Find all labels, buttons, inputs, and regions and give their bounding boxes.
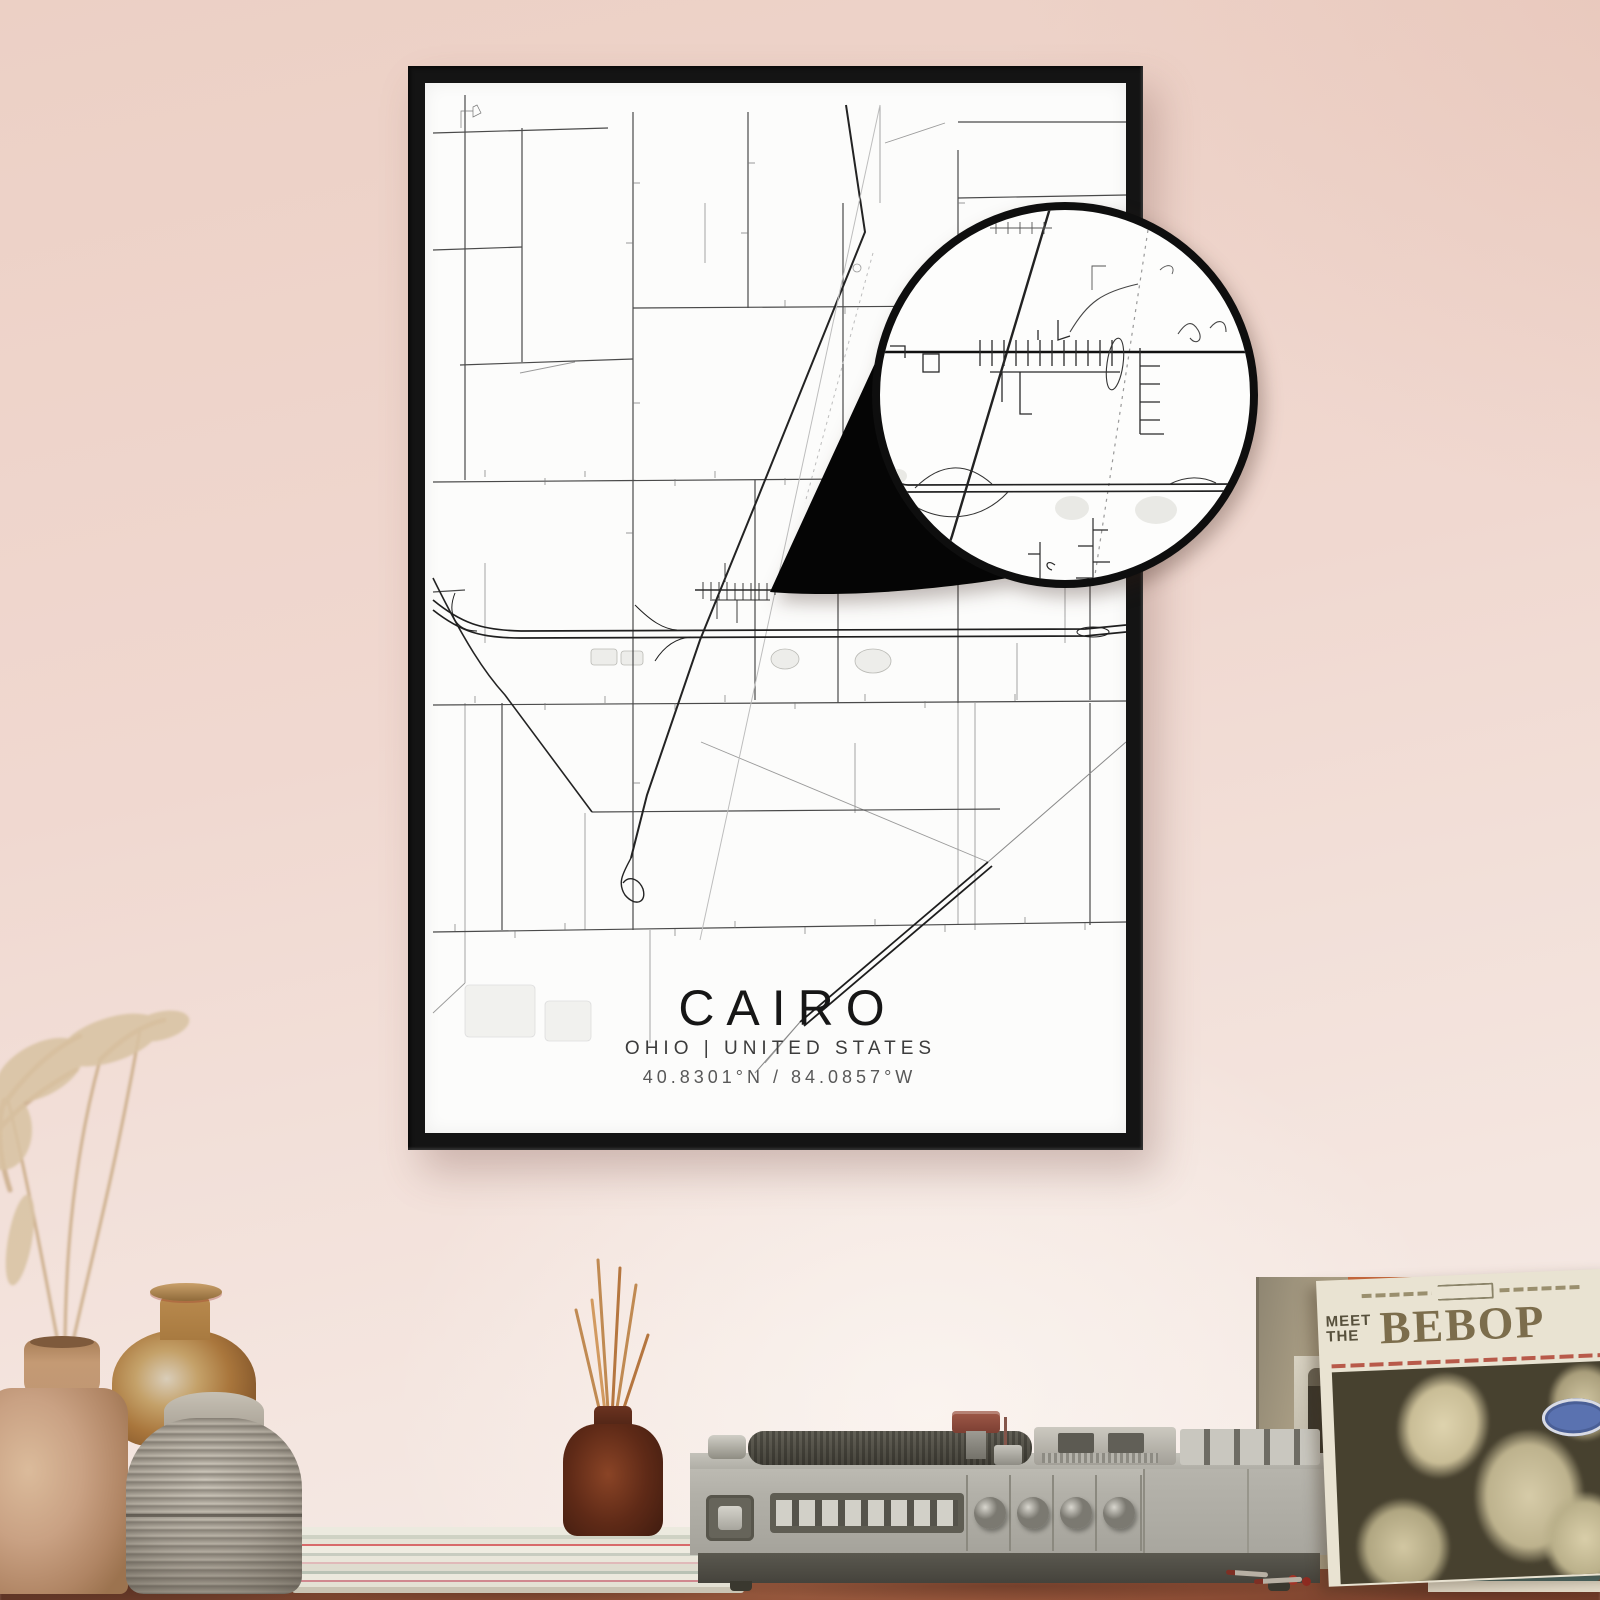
tan-jug-body [0,1388,128,1594]
amber-vase-neck [160,1296,210,1340]
player-lever-knob [708,1435,746,1459]
knob-divider [966,1475,968,1551]
poster-coordinates: 40.8301°N / 84.0857°W [425,1067,1130,1088]
volume-knob [974,1497,1006,1529]
red-accent [1302,1577,1311,1586]
tray-slot [1058,1433,1094,1453]
sleeve-title-bar: MEET THE BEBOP [1325,1296,1600,1362]
power-button [718,1506,742,1530]
knob-divider [1140,1475,1142,1551]
sleeve-photo [1332,1360,1600,1584]
paper-stack-edge [1428,1581,1600,1592]
knob-divider [1052,1475,1054,1551]
panel-seam [1247,1469,1249,1555]
knob-divider [1009,1475,1011,1551]
player-front-right-panel [1143,1469,1327,1555]
magnifier-circle [876,206,1254,584]
diffuser-bottle [563,1424,663,1536]
magnifier-detail [740,170,1300,640]
player-base [698,1553,1320,1583]
sleeve-fine-print-left [1362,1291,1432,1298]
sleeve-fine-print-right [1499,1285,1579,1292]
tonearm-stem [966,1431,986,1459]
turntable-platter [748,1431,1032,1465]
sleeve-meet-the: MEET THE [1325,1313,1372,1345]
tan-jug-mouth [30,1336,94,1348]
magazine-stack [292,1527,744,1593]
scene: CAIRO OHIO | UNITED STATES 40.8301°N / 8… [0,0,1600,1600]
knob-divider [1095,1475,1097,1551]
bebop-record-sleeve: MEET THE BEBOP [1316,1268,1600,1586]
record-player [690,1405,1325,1593]
tuning-knob [1103,1497,1135,1529]
sleeve-the: THE [1326,1328,1372,1345]
tray-ridges [1042,1453,1158,1463]
poster-title: CAIRO [425,979,1138,1037]
sleeve-title: BEBOP [1379,1299,1547,1350]
poster-subtitle: OHIO | UNITED STATES [425,1038,1131,1060]
amber-vase-rim [150,1283,222,1301]
tonearm-head [952,1411,1000,1433]
preset-buttons [776,1500,958,1526]
player-switch-block [994,1445,1022,1465]
sleeve-face-bottomleft [1345,1495,1462,1584]
balance-knob [1060,1497,1092,1529]
gray-ribbed-vase [126,1418,302,1594]
player-key-row [1180,1429,1320,1465]
tone-knob [1017,1497,1049,1529]
tray-slot [1108,1433,1144,1453]
player-foot [730,1581,752,1591]
